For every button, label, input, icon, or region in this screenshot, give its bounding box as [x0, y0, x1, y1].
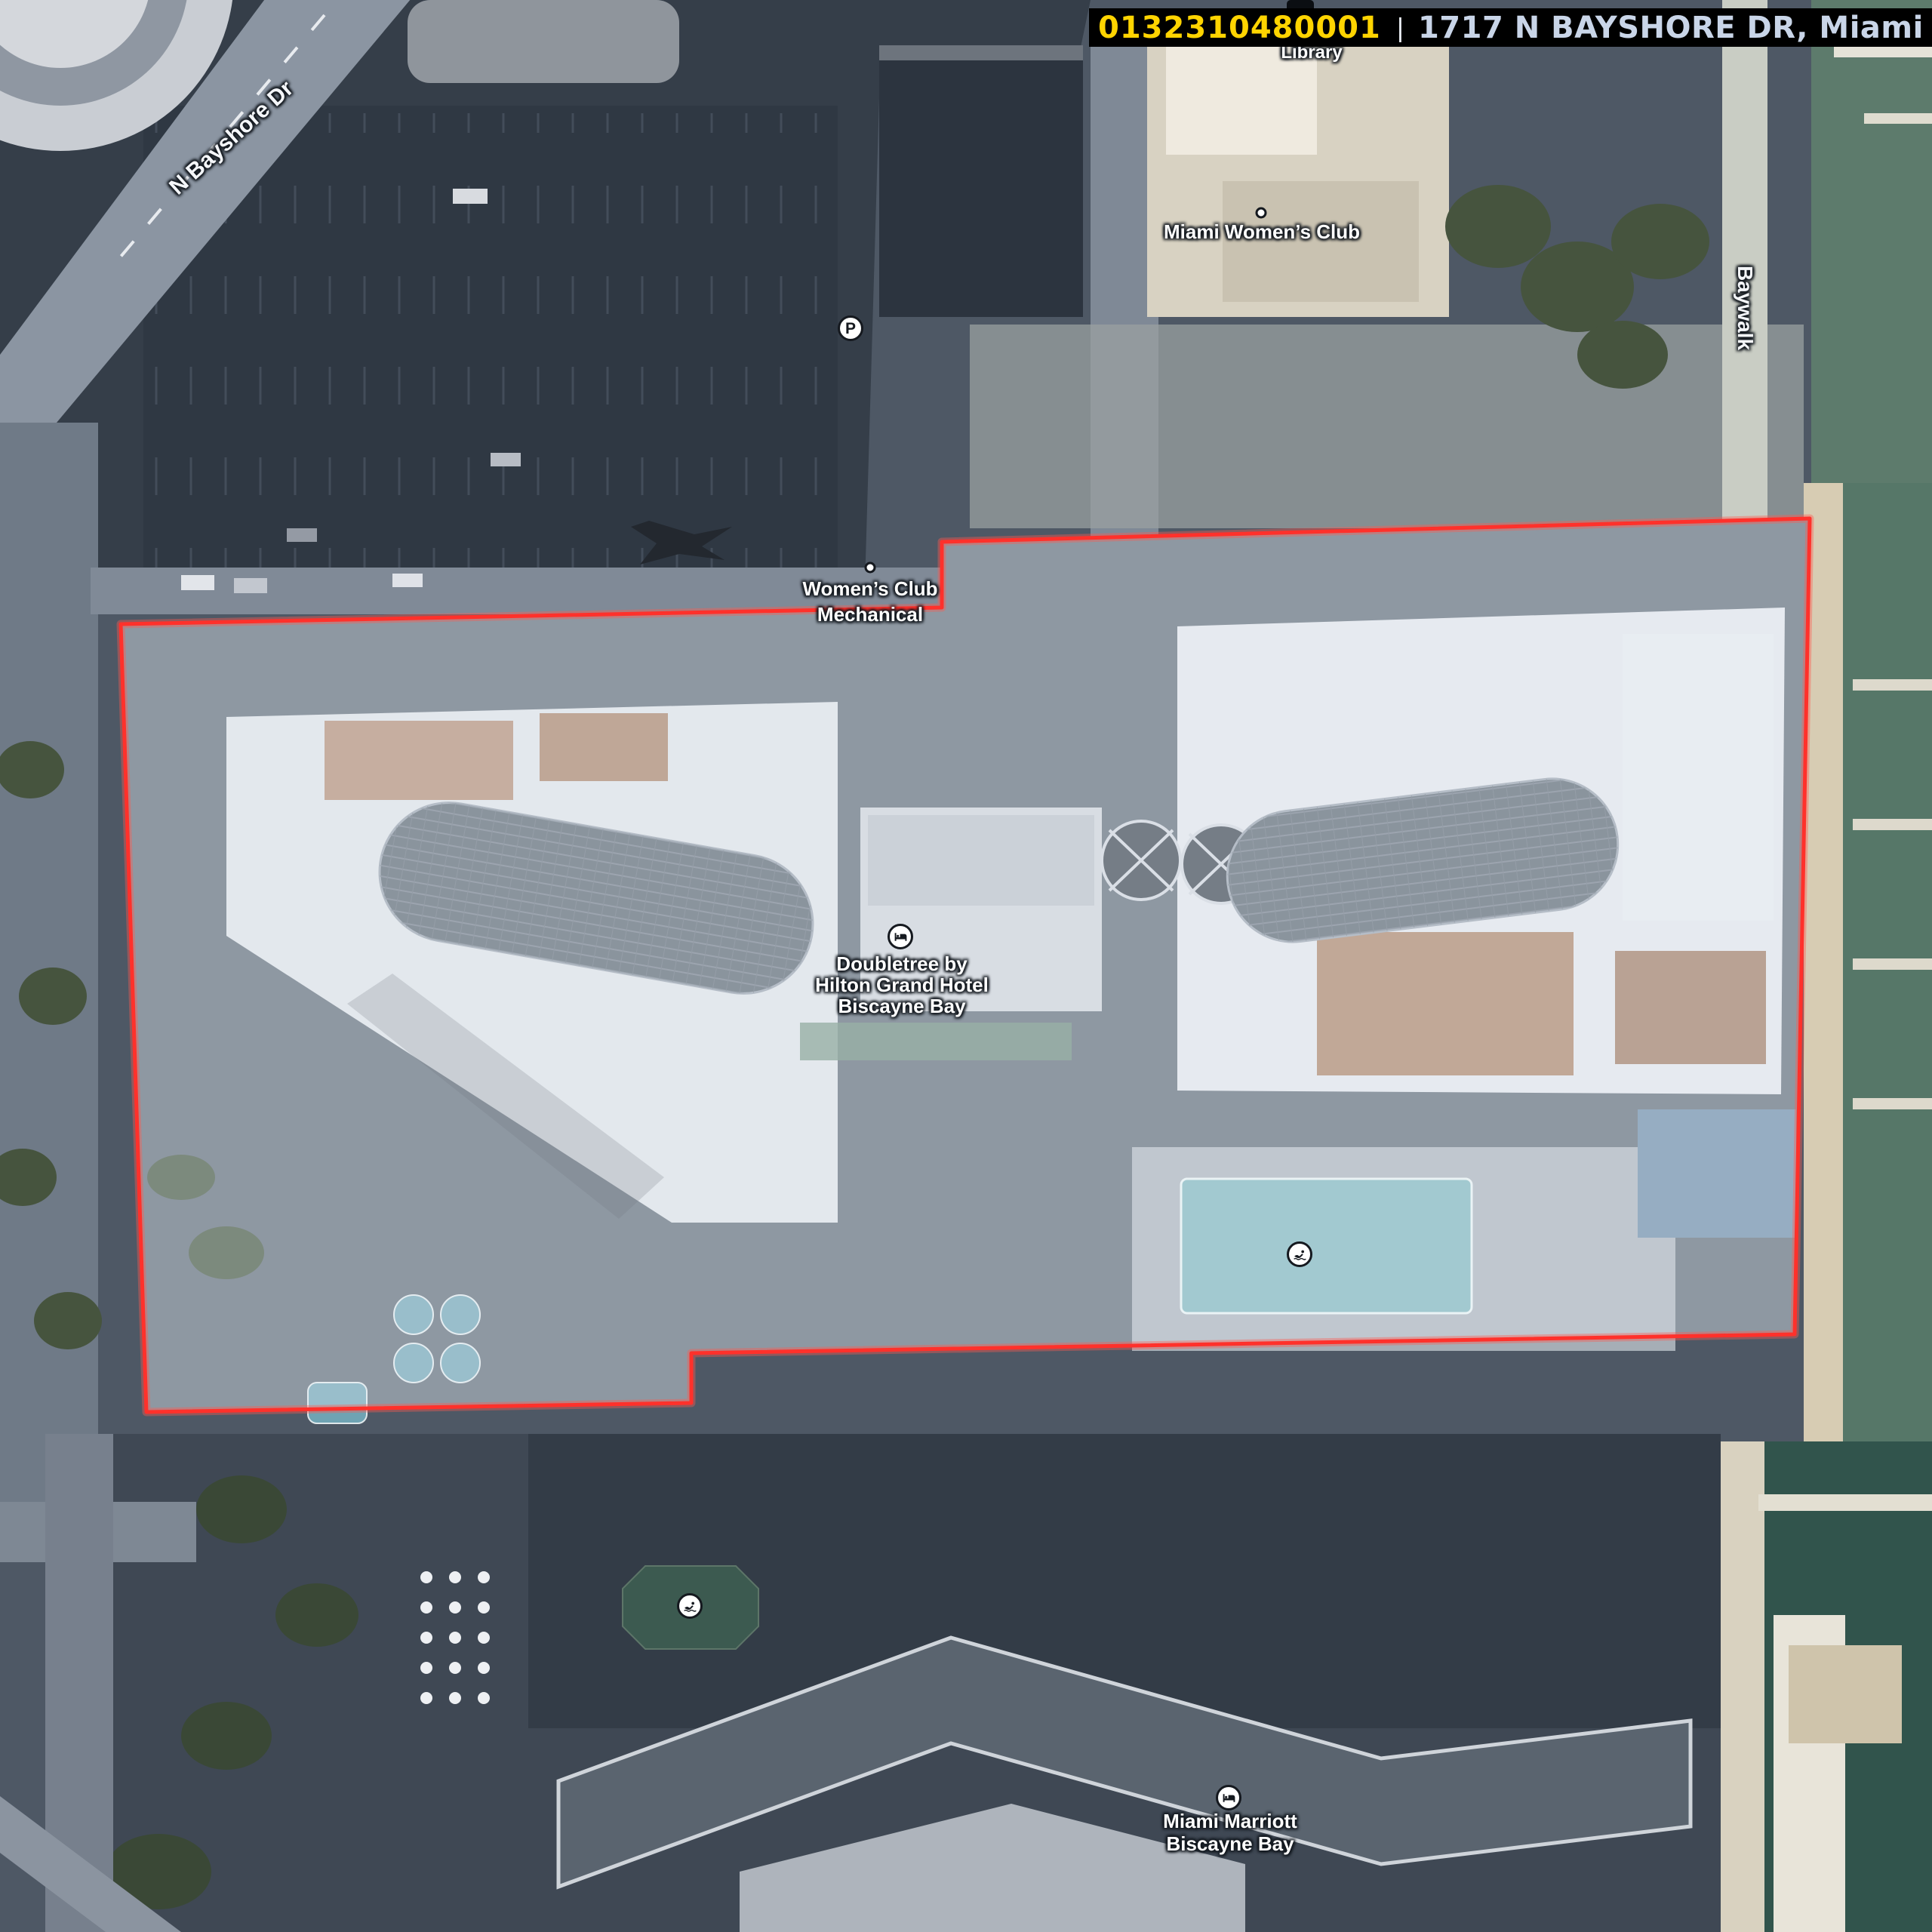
mechanical-poi-dot [865, 562, 876, 574]
aerial-map[interactable]: Library Miami Women’s Club N Bayshore Dr… [0, 0, 1932, 1932]
miami-womens-club-label: Miami Women’s Club [1164, 220, 1360, 243]
parking-icon: P [838, 315, 863, 341]
bed-icon [893, 929, 909, 945]
parcel-header-bar: 0132310480001 | 1717 N BAYSHORE DR, Miam… [1089, 8, 1932, 47]
swimmer-icon [682, 1598, 698, 1614]
parcel-address: 1717 N BAYSHORE DR, Miami [1418, 11, 1924, 45]
bed-icon [1221, 1790, 1237, 1806]
header-separator: | [1396, 13, 1404, 42]
marriott-lodging-icon [1216, 1785, 1241, 1810]
doubletree-lodging-icon [888, 924, 913, 949]
doubletree-pool-icon [1287, 1241, 1312, 1267]
n-bayshore-dr-label: N Bayshore Dr [166, 77, 298, 199]
womens-club-mechanical-label: Women’s Club Mechanical [802, 576, 937, 627]
marriott-pool-icon [677, 1593, 703, 1619]
library-icon [1287, 0, 1314, 8]
parking-glyph: P [845, 321, 856, 337]
miami-marriott-label: Miami Marriott Biscayne Bay [1163, 1810, 1297, 1855]
womens-club-poi-dot [1256, 208, 1267, 219]
swimmer-icon [1292, 1247, 1308, 1263]
baywalk-label: Baywalk [1734, 266, 1756, 350]
doubletree-label: Doubletree by Hilton Grand Hotel Biscayn… [815, 953, 989, 1017]
parcel-id: 0132310480001 [1098, 11, 1381, 45]
map-labels-layer: Library Miami Women’s Club N Bayshore Dr… [0, 0, 1932, 1932]
